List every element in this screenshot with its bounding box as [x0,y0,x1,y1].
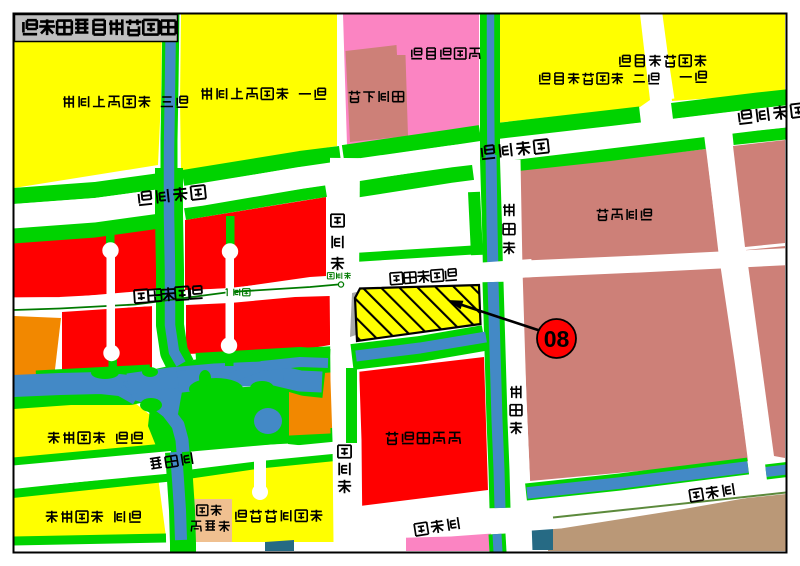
svg-text:08: 08 [544,326,570,352]
